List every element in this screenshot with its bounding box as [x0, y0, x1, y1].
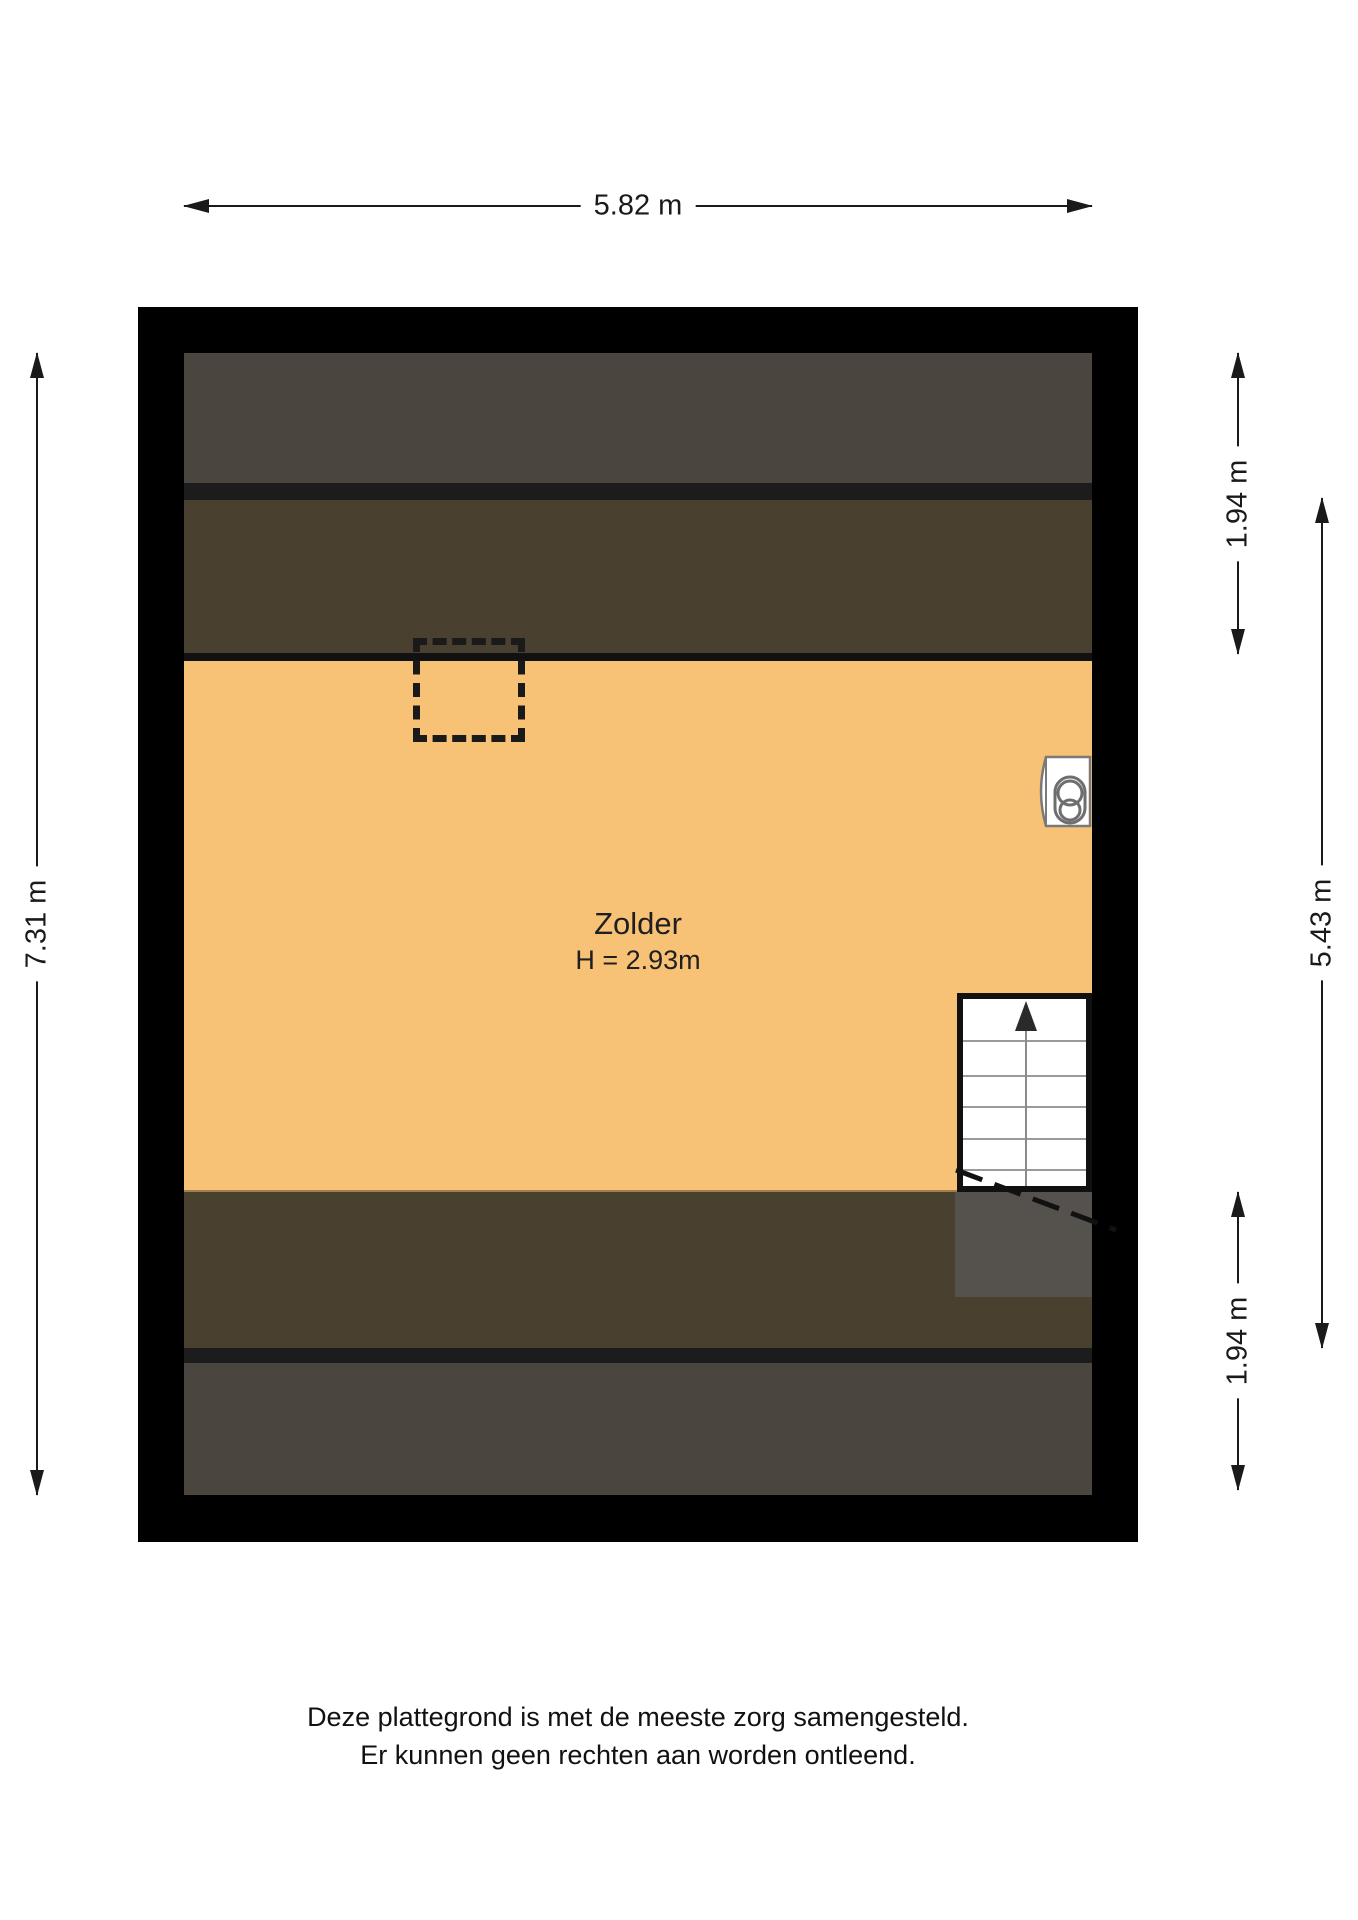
dimension-label: 1.94 m: [1221, 446, 1256, 561]
arrowhead-down-icon: [30, 1470, 44, 1496]
knee-wall-bottom: [184, 1348, 1092, 1363]
arrowhead-up-icon: [1231, 1191, 1245, 1217]
stairs-tread-lines: [963, 999, 1086, 1186]
floor-edge-line-top: [184, 653, 1092, 661]
dimension-label: 1.94 m: [1221, 1284, 1256, 1399]
arrowhead-up-icon: [1315, 497, 1329, 523]
knee-wall-top: [184, 483, 1092, 500]
outer-walls: Zolder H = 2.93m: [138, 307, 1138, 1542]
dimension-right-top: 1.94 m: [1218, 353, 1258, 654]
sloped-ceiling-top: [184, 500, 1092, 653]
arrowhead-down-icon: [1315, 1323, 1329, 1349]
dimension-left: 7.31 m: [17, 353, 57, 1495]
arrowhead-right-icon: [1067, 199, 1093, 213]
footer-disclaimer: Deze plattegrond is met de meeste zorg s…: [138, 1698, 1138, 1774]
dimension-label: 5.43 m: [1305, 866, 1340, 981]
stairs-shadow: [955, 1192, 1092, 1297]
dimension-right-middle: 5.43 m: [1302, 498, 1342, 1348]
arrowhead-down-icon: [1231, 629, 1245, 655]
dimension-label: 7.31 m: [20, 867, 55, 982]
attic-floor: Zolder H = 2.93m: [184, 353, 1092, 1495]
arrowhead-up-icon: [30, 352, 44, 378]
arrowhead-left-icon: [183, 199, 209, 213]
disclaimer-line-2: Er kunnen geen rechten aan worden ontlee…: [138, 1736, 1138, 1774]
floorplan-page: 5.82 m 7.31 m 1.94 m 5.43 m 1.94 m: [0, 0, 1358, 1920]
room-label: Zolder H = 2.93m: [184, 905, 1092, 977]
room-name: Zolder: [184, 905, 1092, 942]
roof-zone-top: [184, 353, 1092, 483]
dimension-top: 5.82 m: [184, 186, 1092, 226]
roof-zone-bottom: [184, 1363, 1092, 1495]
boiler-icon: [1035, 755, 1092, 828]
disclaimer-line-1: Deze plattegrond is met de meeste zorg s…: [138, 1698, 1138, 1736]
staircase: [957, 993, 1092, 1192]
skylight-dashed-outline: [413, 638, 525, 742]
dimension-label: 5.82 m: [581, 189, 696, 224]
stairs-up-arrow-icon: [1015, 1001, 1037, 1031]
dimension-right-bottom: 1.94 m: [1218, 1192, 1258, 1490]
arrowhead-down-icon: [1231, 1465, 1245, 1491]
room-height-label: H = 2.93m: [184, 944, 1092, 977]
arrowhead-up-icon: [1231, 352, 1245, 378]
